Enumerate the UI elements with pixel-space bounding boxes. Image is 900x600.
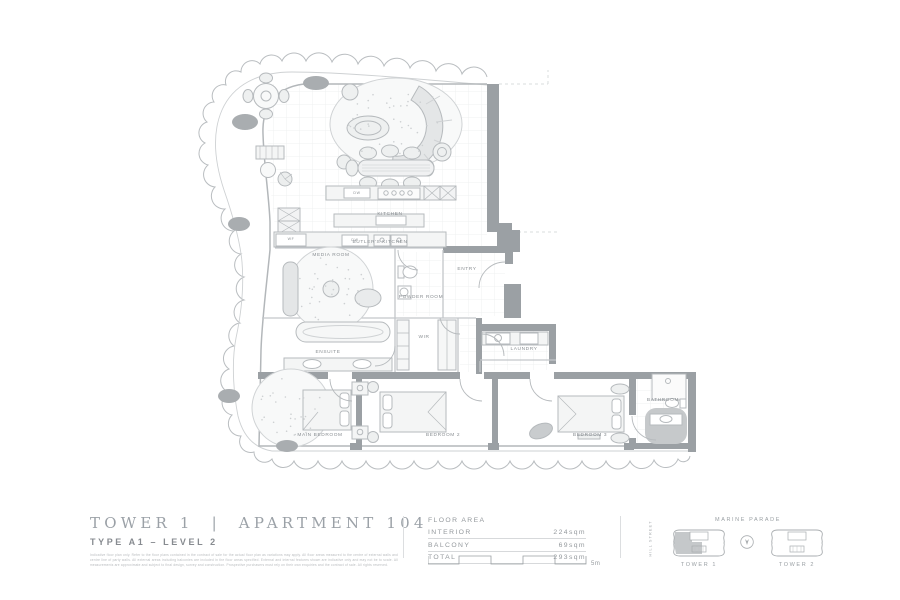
room-label-bedroom-2: BEDROOM 2 [426,432,460,438]
title-block: TOWER 1 | APARTMENT 104 TYPE A1 – LEVEL … [90,514,398,568]
area-value: 224sqm [553,529,586,536]
tower2-label: TOWER 2 [766,562,828,568]
ensuite-bathtub [296,322,390,342]
footer-divider-right [620,516,621,558]
ensuite-vanity [284,358,392,371]
page-subtitle: TYPE A1 – LEVEL 2 [90,537,398,547]
scale-bar-label: 5m [591,561,600,567]
room-label-butler-s-kitchen: BUTLER'S KITCHEN [352,239,407,245]
scale-bar: 5m [428,554,608,568]
room-label-powder-room: POWDER ROOM [399,294,443,300]
room-label-entry: ENTRY [457,266,476,272]
street-label-hill-street: HILL STREET [648,517,653,561]
floor-plan-drawing: KITCHENBUTLER'S KITCHENMEDIA ROOMPOWDER … [0,0,900,600]
scale-bar-wave [428,556,586,564]
room-label-wir: WIR [418,334,429,340]
wir-wardrobes [397,320,456,370]
area-label: BALCONY [428,542,470,549]
area-label: INTERIOR [428,529,472,536]
footer-divider-left [403,516,404,558]
media-room-rug [289,247,373,331]
room-label-media-room: MEDIA ROOM [312,252,349,258]
tower1-footprint [668,526,730,560]
appliance-label-dw-2: DW [351,238,358,242]
appliance-label-dw-1: DW [353,191,360,195]
floor-plan-page: { "header": { "title": "TOWER 1 | APARTM… [0,0,900,600]
room-label-laundry: LAUNDRY [510,346,537,352]
room-label-bathroom: BATHROOM [647,397,679,403]
adjacent-unit-dashes [499,70,560,232]
dining-table [346,145,434,191]
tower1-label: TOWER 1 [668,562,730,568]
area-table-title: FLOOR AREA [428,516,586,527]
laundry-bench [482,332,548,345]
appliance-label-wf-0: WF [288,237,295,241]
tower2-footprint [766,526,828,560]
area-row-balcony: BALCONY 69sqm [428,539,586,551]
disclaimer-text: Indicative floor plan only. Refer to the… [90,553,398,568]
room-label-kitchen: KITCHEN [377,211,402,217]
area-row-interior: INTERIOR 224sqm [428,527,586,539]
compass-icon [739,534,755,550]
room-label-ensuite: ENSUITE [316,349,341,355]
room-label-bedroom-3: BEDROOM 3 [573,432,607,438]
room-label-main-bedroom: MAIN BEDROOM [297,432,342,438]
area-value: 69sqm [559,542,586,549]
street-label-marine-parade: MARINE PARADE [664,517,832,523]
page-title: TOWER 1 | APARTMENT 104 [90,514,398,532]
